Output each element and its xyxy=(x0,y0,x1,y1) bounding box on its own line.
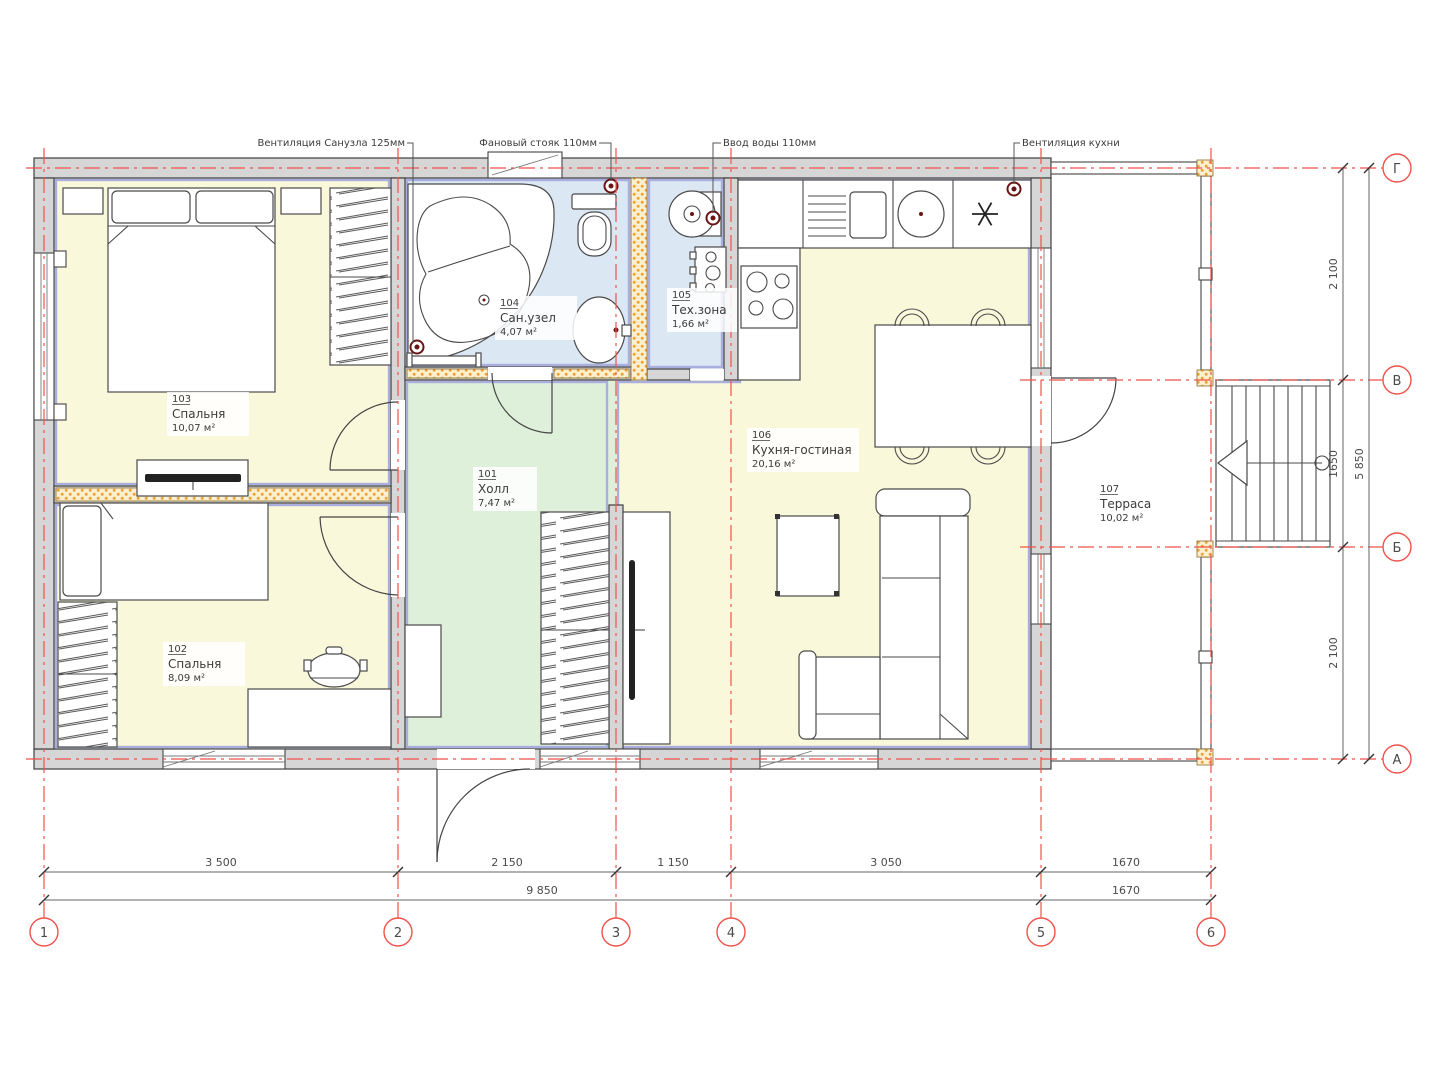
dim-3-4: 1 150 xyxy=(657,856,689,869)
svg-text:Кухня-гостиная: Кухня-гостиная xyxy=(752,443,852,457)
cooktop xyxy=(741,266,797,328)
dim-g-v: 2 100 xyxy=(1327,258,1340,290)
svg-text:2: 2 xyxy=(394,926,402,941)
svg-text:10,07 м²: 10,07 м² xyxy=(172,423,215,434)
nightstand xyxy=(281,188,321,214)
svg-text:А: А xyxy=(1393,753,1402,768)
pillow xyxy=(112,191,190,223)
axis-bubble-v: В xyxy=(1383,366,1411,394)
annotation-vent-kitchen: Вентиляция кухни xyxy=(1022,138,1120,149)
dim-1-2: 3 500 xyxy=(205,856,237,869)
axis-bubble-6: 6 xyxy=(1197,918,1225,946)
nightstand xyxy=(63,188,103,214)
wardrobe xyxy=(58,602,117,747)
vent-window-top xyxy=(488,152,562,178)
svg-text:3: 3 xyxy=(612,926,620,941)
svg-text:104: 104 xyxy=(500,298,519,309)
dim-b-a: 2 100 xyxy=(1327,637,1340,669)
insulated-partition-bath xyxy=(631,178,647,380)
coffee-table xyxy=(775,514,839,596)
svg-text:101: 101 xyxy=(478,469,497,480)
axis-bubble-2: 2 xyxy=(384,918,412,946)
right-dimensions: 2 100 1650 2 100 5 850 xyxy=(1327,163,1374,764)
svg-text:Сан.узел: Сан.узел xyxy=(500,311,556,325)
axis-bubble-b: Б xyxy=(1383,533,1411,561)
door-terrace xyxy=(1051,378,1116,443)
room-label-tech: 105 Тех.зона 1,66 м² xyxy=(667,288,737,332)
dim-total: 9 850 xyxy=(526,884,558,897)
axis-bubble-a: А xyxy=(1383,745,1411,773)
dim-right-total: 5 850 xyxy=(1353,448,1366,480)
svg-text:7,47 м²: 7,47 м² xyxy=(478,498,515,509)
pillow xyxy=(196,191,273,223)
axis-bubble-3: 3 xyxy=(602,918,630,946)
tv xyxy=(629,560,635,700)
dim-terrace: 1670 xyxy=(1112,884,1140,897)
svg-text:Г: Г xyxy=(1393,162,1401,177)
hall-wardrobe xyxy=(541,512,609,744)
svg-text:1: 1 xyxy=(40,926,48,941)
room-label-bedroom1: 103 Спальня 10,07 м² xyxy=(167,392,249,436)
svg-text:6: 6 xyxy=(1207,926,1215,941)
dim-5-6: 1670 xyxy=(1112,856,1140,869)
axis-bubbles-right: Г В Б А xyxy=(1383,154,1411,773)
dim-4-5: 3 050 xyxy=(870,856,902,869)
svg-text:Б: Б xyxy=(1393,541,1402,556)
svg-text:10,02 м²: 10,02 м² xyxy=(1100,513,1143,524)
wall-tech-bottom xyxy=(647,369,690,380)
room-label-kitchen-living: 106 Кухня-гостиная 20,16 м² xyxy=(747,428,859,472)
toilet xyxy=(572,194,616,256)
round-sink xyxy=(898,191,944,237)
dining-table xyxy=(875,325,1031,447)
annotation-water-inlet: Ввод воды 110мм xyxy=(723,138,816,149)
pillow xyxy=(63,506,101,596)
insulated-bath-wall-a xyxy=(407,369,488,378)
manifold xyxy=(690,247,726,293)
room-label-bedroom2: 102 Спальня 8,09 м² xyxy=(163,642,245,686)
axis-bubble-g: Г xyxy=(1383,154,1411,182)
annotation-sewer-riser: Фановый стояк 110мм xyxy=(479,138,597,149)
tv-closet xyxy=(623,512,670,744)
insulated-bath-wall-b xyxy=(554,369,629,378)
desk xyxy=(248,689,391,747)
stairs xyxy=(1216,380,1330,547)
svg-text:102: 102 xyxy=(168,644,187,655)
svg-text:В: В xyxy=(1393,374,1402,389)
svg-text:1,66 м²: 1,66 м² xyxy=(672,319,709,330)
svg-text:Спальня: Спальня xyxy=(168,657,221,671)
floor-plan: Вентиляция Санузла 125мм Фановый стояк 1… xyxy=(0,0,1440,1080)
svg-text:Холл: Холл xyxy=(478,482,509,496)
svg-text:20,16 м²: 20,16 м² xyxy=(752,459,795,470)
kitchen-vent-symbol xyxy=(1008,183,1021,196)
dim-v-b: 1650 xyxy=(1327,450,1340,478)
svg-text:Спальня: Спальня xyxy=(172,407,225,421)
svg-text:105: 105 xyxy=(672,290,691,301)
dim-2-3: 2 150 xyxy=(491,856,523,869)
axis-bubble-5: 5 xyxy=(1027,918,1055,946)
bath-vent-symbol xyxy=(411,341,424,354)
annotation-vent-bathroom: Вентиляция Санузла 125мм xyxy=(257,138,405,149)
water-inlet-symbol xyxy=(707,212,720,225)
svg-text:106: 106 xyxy=(752,430,771,441)
axis-bubbles-bottom: 1 2 3 4 5 6 xyxy=(30,918,1225,946)
wardrobe xyxy=(330,188,391,365)
svg-text:4,07 м²: 4,07 м² xyxy=(500,327,537,338)
terrace-structure xyxy=(1051,160,1330,765)
room-label-terrace: 107 Терраса 10,02 м² xyxy=(1095,482,1173,526)
room-label-bathroom: 104 Сан.узел 4,07 м² xyxy=(495,296,577,340)
svg-text:103: 103 xyxy=(172,394,191,405)
door-entrance xyxy=(437,769,530,862)
svg-text:107: 107 xyxy=(1100,484,1119,495)
axis-bubble-1: 1 xyxy=(30,918,58,946)
svg-text:5: 5 xyxy=(1037,926,1045,941)
svg-text:4: 4 xyxy=(727,926,735,941)
tv xyxy=(145,474,241,482)
svg-text:Терраса: Терраса xyxy=(1099,497,1151,511)
axis-bubble-4: 4 xyxy=(717,918,745,946)
svg-text:8,09 м²: 8,09 м² xyxy=(168,673,205,684)
svg-text:Тех.зона: Тех.зона xyxy=(671,303,727,317)
room-label-hall: 101 Холл 7,47 м² xyxy=(473,467,537,511)
bottom-dimensions: 3 500 2 150 1 150 3 050 1670 9 850 1670 xyxy=(39,856,1216,905)
hall-cabinet xyxy=(405,625,441,717)
